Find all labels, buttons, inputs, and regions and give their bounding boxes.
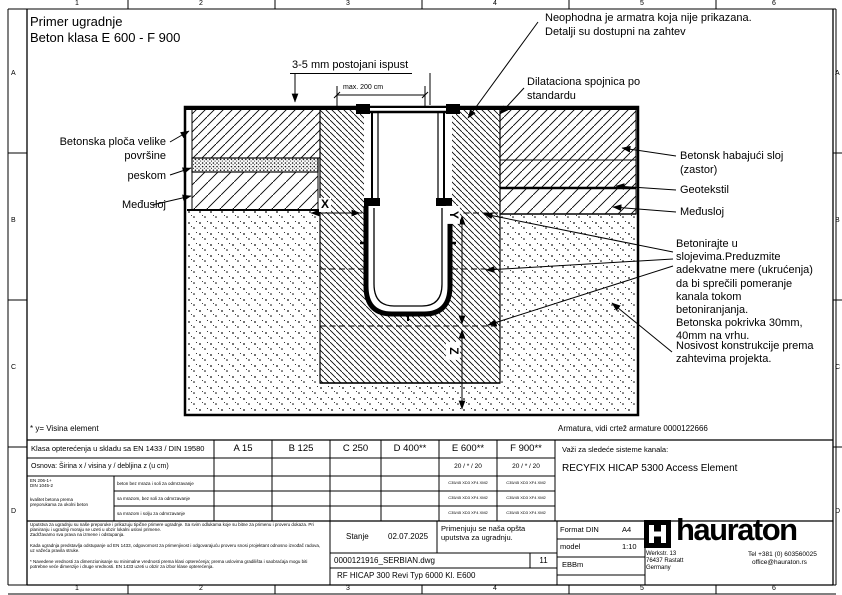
exposure-cell: C35/45 XD3 XF4 XM2 <box>498 481 554 486</box>
table-header-label: Klasa opterećenja u skladu sa EN 1433 / … <box>31 445 204 454</box>
concrete-std-line2: DIN 1045-2 <box>30 483 53 488</box>
cad-sheet: 1 2 3 4 5 6 1 2 3 4 5 6 A B C D A B C D … <box>0 0 842 595</box>
brand-address-line2: 76437 Rastatt <box>646 558 683 565</box>
grid-col-label: 3 <box>338 585 358 593</box>
callout-betonirajte: Betonirajte u slojevima.Preduzmite adekv… <box>676 238 842 344</box>
grid-col-label: 1 <box>67 0 87 8</box>
file-name: 0000121916_SERBIAN.dwg <box>334 556 435 565</box>
drawing-name: RF HICAP 300 Revi Typ 6000 Kl. E600 <box>337 571 475 580</box>
grid-row-label: D <box>11 508 16 516</box>
legal-paragraph-2: Kada ugradnja predstavlja odstupanje od … <box>30 544 326 554</box>
sheet-number: 11 <box>530 556 557 565</box>
brand-telephone: Tel +381 (0) 603560025 <box>748 551 817 558</box>
stanje-label: Stanje <box>346 532 369 541</box>
legal-paragraph-1: Uputstva za ugradnju su naše preporuke i… <box>30 523 326 537</box>
dim-max-200: max. 200 cm <box>341 84 385 92</box>
brand-address-line1: Werkstr. 13 <box>646 551 676 558</box>
grid-col-label: 1 <box>67 585 87 593</box>
callout-ispust: 3-5 mm postojani ispust <box>290 59 412 74</box>
brand-email: office@hauraton.rs <box>752 559 807 566</box>
grid-col-label: 4 <box>485 0 505 8</box>
drawing-code: EBBm <box>562 561 583 570</box>
callout-dilataciona-line1: Dilataciona spojnica po <box>527 76 640 89</box>
grid-row-label: D <box>835 508 840 516</box>
class-header-e600: E 600** <box>439 444 497 455</box>
grid-row-label: C <box>11 364 16 372</box>
exposure-row-label: beton bez mraza i soli za odmrzavanje <box>117 481 194 486</box>
callout-dilataciona-line2: standardu <box>527 90 576 103</box>
format-value: A4 <box>622 526 631 535</box>
system-name: RECYFIX HICAP 5300 Access Element <box>562 463 737 475</box>
scale-value: 1:10 <box>622 543 637 552</box>
scale-label: model <box>560 543 580 552</box>
callout-betonska-ploca-line1: Betonska ploča velike <box>18 136 166 149</box>
exposure-cell: C35/45 XD3 XF4 XM2 <box>440 496 496 501</box>
hauraton-logo-icon <box>644 520 671 548</box>
callout-betonska-ploca-line2: površine <box>18 150 166 163</box>
callout-armatura-line2: Detalji su dostupni na zahtev <box>545 26 686 39</box>
stanje-value: 02.07.2025 <box>388 532 428 541</box>
exposure-row-label: sa mrazom i solju za odmrzavanje <box>117 511 185 516</box>
dim-label-y: Y <box>446 206 460 224</box>
callout-medjusloj-right: Međusloj <box>680 206 724 219</box>
callout-nosivost: Nosivost konstrukcije prema zahtevima pr… <box>676 340 842 366</box>
exposure-cell: C35/45 XD3 XF4 XM2 <box>440 511 496 516</box>
brand-address-line3: Germany <box>646 565 671 572</box>
grid-row-label: B <box>11 217 16 225</box>
grid-col-label: 6 <box>764 0 784 8</box>
system-applies-label: Važi za sledeće sisteme kanala: <box>562 446 668 455</box>
format-label: Format DIN <box>560 526 599 535</box>
note-armatura-ref: Armatura, vidi crtež armature 0000122666 <box>558 424 708 433</box>
grid-col-label: 5 <box>632 0 652 8</box>
table-row2-label: Osnova: Širina x / visina y / debljina z… <box>31 463 169 471</box>
callout-geotekstil: Geotekstil <box>680 184 729 197</box>
callout-habajuci-line1: Betonsk habajući sloj <box>680 150 783 163</box>
grid-col-label: 5 <box>632 585 652 593</box>
dims-f900: 20 / * / 20 <box>497 463 555 470</box>
dims-e600: 20 / * / 20 <box>439 463 497 470</box>
exposure-row-label: sa mrazom, bez soli za odmrzavanje <box>117 496 190 501</box>
uputstva-note: Primenjuju se naša opšta uputstva za ugr… <box>441 524 553 542</box>
grid-col-label: 2 <box>191 585 211 593</box>
grid-row-label: B <box>835 217 840 225</box>
class-header-c250: C 250 <box>330 444 381 455</box>
grid-row-label: A <box>835 70 840 78</box>
brand-wordmark: hauraton <box>676 512 797 548</box>
grid-col-label: 3 <box>338 0 358 8</box>
page-subtitle: Beton klasa E 600 - F 900 <box>30 31 180 46</box>
grid-col-label: 2 <box>191 0 211 8</box>
class-header-f900: F 900** <box>497 444 555 455</box>
callout-habajuci-line2: (zastor) <box>680 164 717 177</box>
callout-medjusloj-left: Međusloj <box>18 199 166 212</box>
note-visina: * y= Visina element <box>30 424 99 433</box>
page-title: Primer ugradnje <box>30 15 123 30</box>
channel-unit <box>356 104 460 321</box>
class-header-a15: A 15 <box>214 444 272 455</box>
exposure-cell: C35/45 XD3 XF4 XM2 <box>498 511 554 516</box>
grid-col-label: 4 <box>485 585 505 593</box>
callout-armatura-line1: Neophodna je armatra koja nije prikazana… <box>545 12 752 25</box>
concrete-note-line2: preporukama za okolni beton <box>30 502 88 507</box>
dim-label-x: X <box>319 198 331 212</box>
callout-peskom: peskom <box>18 170 166 183</box>
class-header-d400: D 400** <box>381 444 439 455</box>
exposure-cell: C35/45 XD3 XF4 XM2 <box>440 481 496 486</box>
grid-row-label: A <box>11 70 16 78</box>
legal-paragraph-3: * Navedene vrednosti za dimenzionisanje … <box>30 560 326 570</box>
exposure-cell: C35/45 XD3 XF4 XM2 <box>498 496 554 501</box>
dim-label-z: Z <box>446 342 460 360</box>
grid-col-label: 6 <box>764 585 784 593</box>
class-header-b125: B 125 <box>272 444 330 455</box>
